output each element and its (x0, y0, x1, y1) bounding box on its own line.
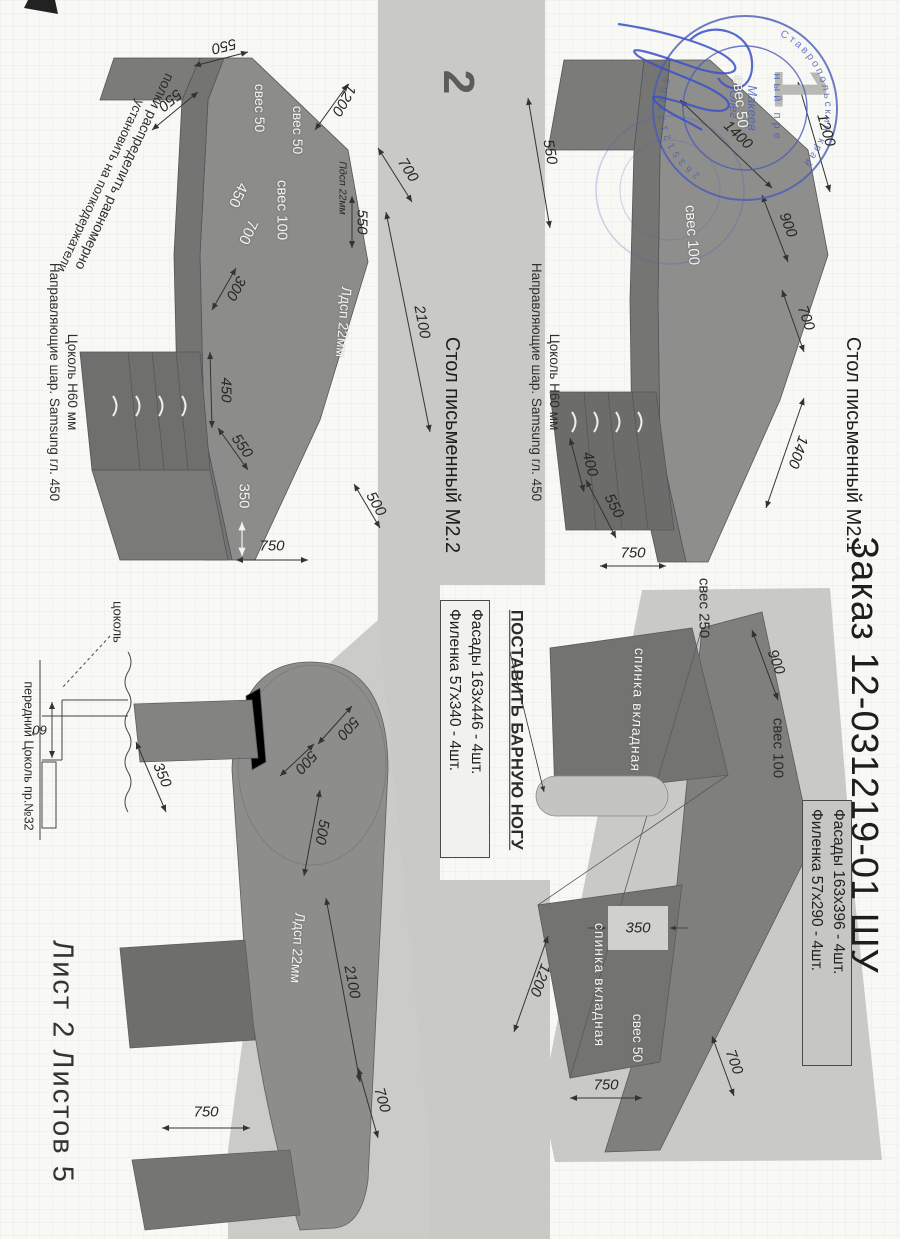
m21-dim-750: 750 (620, 546, 645, 561)
m22-shelf-unit (80, 352, 210, 470)
drawing-sheet: 1 Ставропольский край 263512172805 ный п… (0, 0, 900, 1239)
m21-left-panel (548, 60, 644, 150)
m22-plinth-note-2: Направляющие шар. Samsung гл. 450 (47, 263, 61, 501)
m22s-shelf (134, 700, 258, 762)
m21-facade-line1: Фасады 163х396 - 4шт. (829, 809, 847, 1057)
m22-left-panel (100, 58, 200, 100)
m22-overhang-50-b: свес 50 (291, 106, 305, 155)
m21-plinth-note-1: Цоколь Н60 мм (547, 334, 561, 431)
sheet-footer: Лист 2 Листов 5 (48, 940, 77, 1184)
m21b-overhang-50-label: свес 50 (631, 1014, 645, 1063)
m21-title: Стол письменный М2.1 (843, 337, 863, 553)
m21-facade-box: Фасады 163х396 - 4шт. Филенка 57х290 - 4… (802, 800, 852, 1066)
m22-facade-line2: Филенка 57х340 - 4шт. (445, 609, 463, 849)
m22-overhang-50-a: свес 50 (253, 84, 267, 133)
m22-title: Стол письменный М2.2 (442, 337, 462, 553)
m21b-overhang-250-label: свес 250 (697, 578, 712, 638)
m21b-dim-350: 350 (625, 921, 650, 936)
m22s-dim-500-c: 500 (312, 818, 331, 845)
m22-facade-line1: Фасады 163х446 - 4шт. (467, 609, 485, 849)
plinth-caption: передний Цоколь пр.№32 (22, 681, 35, 830)
m21-plinth-note-2: Направляющие шар. Samsung гл. 450 (529, 263, 543, 501)
m22-plinth-note-1: Цоколь Н60 мм (65, 334, 79, 431)
m22s-dim-750: 750 (193, 1105, 218, 1120)
bar-leg (536, 776, 668, 816)
plinth-label: цоколь (112, 601, 125, 643)
m22-facade-box: Фасады 163х446 - 4шт. Филенка 57х340 - 4… (440, 600, 490, 858)
m21b-insert-back-1: спинка вкладная (629, 648, 647, 773)
m22-overhang-100-label: свес 100 (275, 180, 290, 240)
scan-artifact (24, 0, 58, 14)
m22-dim-450: 450 (219, 377, 234, 402)
m22s-mid-panel (120, 940, 255, 1048)
m22-dim-750: 750 (259, 539, 284, 554)
m21-facade-line2: Филенка 57х290 - 4шт. (807, 809, 825, 1057)
m21b-dim-750: 750 (593, 1078, 618, 1093)
m22-white-350: 350 (237, 483, 252, 508)
m21b-insert-back-2: спинка вкладная (593, 923, 607, 1047)
plinth-detail-sketch (40, 636, 131, 840)
scan-page: 1 Ставропольский край 263512172805 ный п… (0, 0, 900, 1239)
m22-dim-550-mid: 550 (355, 209, 370, 234)
m22-right-lower (92, 470, 228, 560)
bar-leg-note: ПОСТАВИТЬ БАРНУЮ НОГУ (508, 610, 525, 850)
page-number-2: 2 (436, 70, 480, 94)
m21-dim-550-left: 550 (540, 138, 559, 165)
m21-overhang-100-label: свес 100 (682, 204, 701, 265)
m21b-overhang-100-label: свес 100 (771, 718, 786, 778)
m22-board-small: Пдсп 22мм (337, 161, 348, 214)
stamp-inner-top: ный пре (771, 73, 783, 142)
